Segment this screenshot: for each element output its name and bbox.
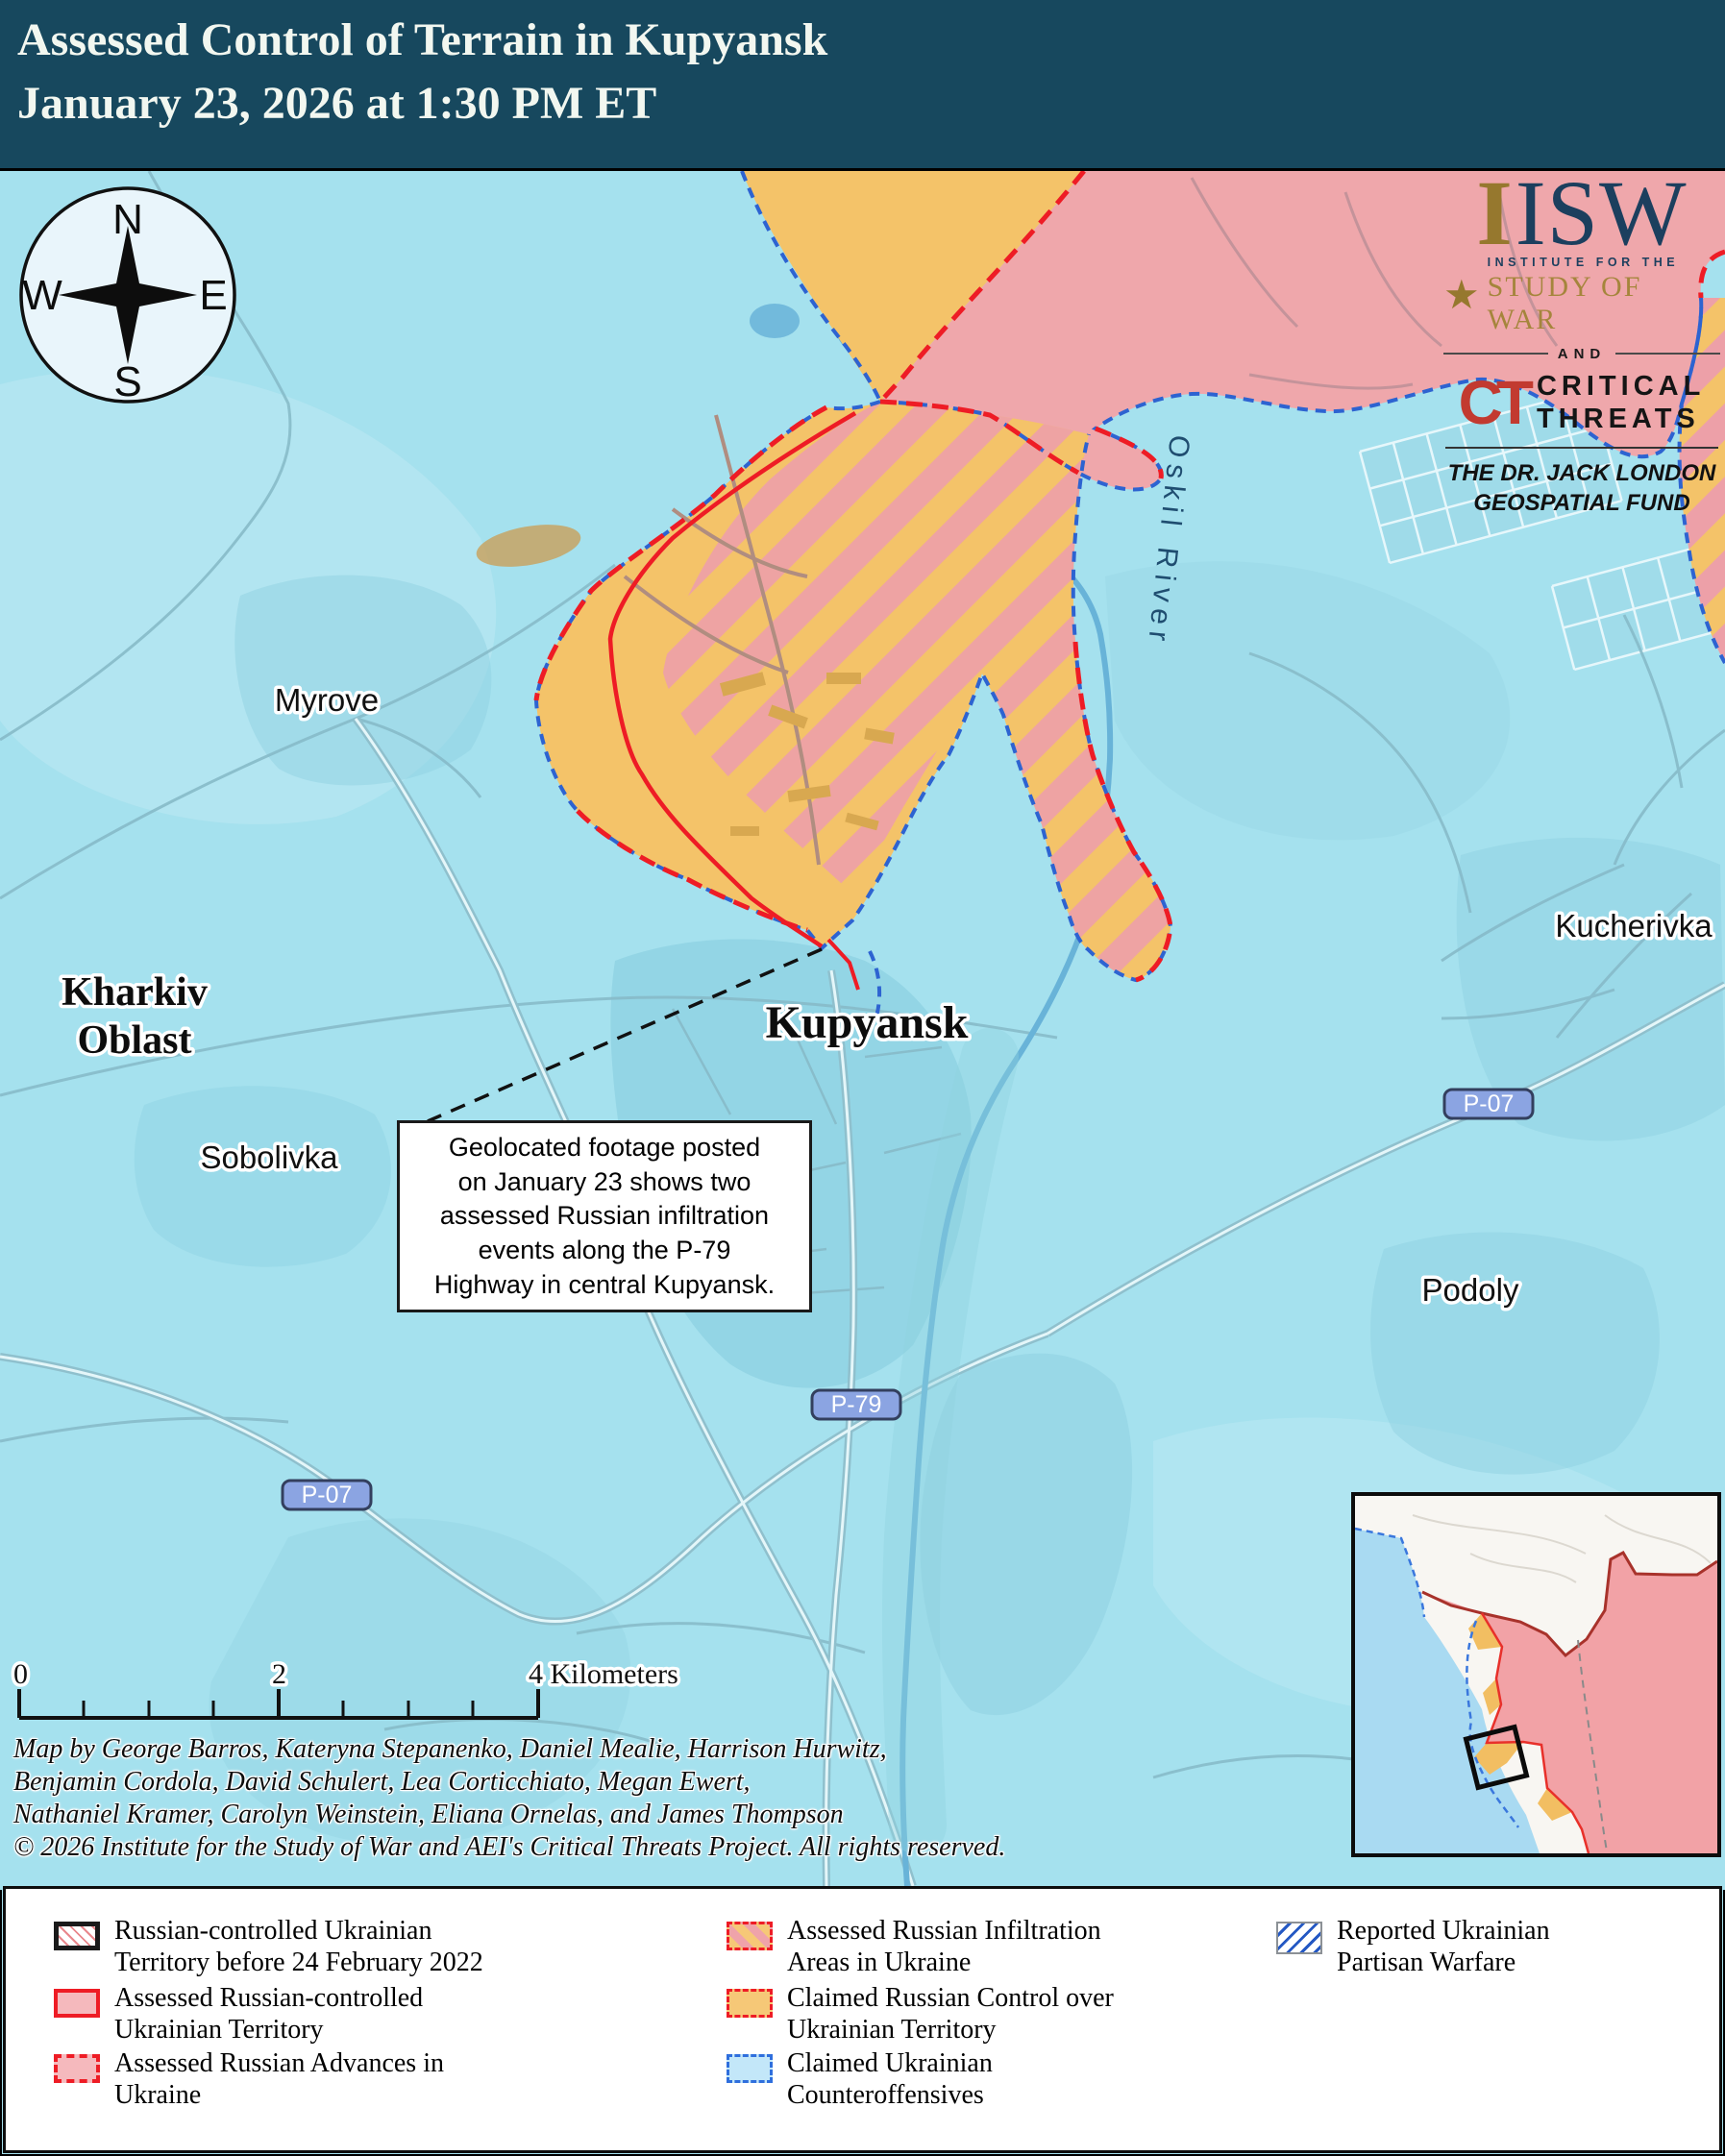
compass-n: N — [112, 196, 143, 243]
legend-label: Reported Ukrainian — [1337, 1916, 1550, 1948]
credits-line-4: © 2026 Institute for the Study of War an… — [13, 1831, 1005, 1864]
compass-s: S — [113, 358, 141, 405]
isw-column-glyph: I — [1476, 176, 1512, 252]
legend-label: Russian-controlled Ukrainian — [114, 1916, 483, 1948]
badge-p07-east: P-07 — [1444, 1090, 1533, 1118]
ct-threats-text: THREATS — [1537, 403, 1705, 435]
legend-swatch-counteroffensives — [727, 2054, 773, 2083]
legend-label: Ukraine — [114, 2080, 444, 2112]
geospatial-fund-text: THE DR. JACK LONDON GEOSPATIAL FUND — [1443, 458, 1720, 518]
scale-2: 2 — [272, 1658, 286, 1690]
legend-label: Territory before 24 February 2022 — [114, 1948, 483, 1979]
legend-swatch-assessed-control — [54, 1989, 100, 2018]
scale-0: 0 — [13, 1658, 28, 1690]
divider-line — [1443, 353, 1548, 355]
legend-label: Claimed Ukrainian — [787, 2048, 993, 2080]
map-credits: Map by George Barros, Kateryna Stepanenk… — [13, 1733, 1005, 1865]
badge-p07-west: P-07 — [283, 1481, 371, 1509]
annotation-line: on January 23 shows two — [404, 1165, 805, 1200]
annotation-line: events along the P-79 — [404, 1234, 805, 1268]
svg-text:P-07: P-07 — [1464, 1090, 1515, 1117]
legend-item-counteroffensives: Claimed UkrainianCounteroffensives — [727, 2048, 993, 2112]
legend-swatch-pre2022 — [54, 1922, 100, 1950]
legend-label: Areas in Ukraine — [787, 1948, 1101, 1979]
isw-study-of-war-text: STUDY OF WAR — [1488, 271, 1720, 336]
legend-item-infiltration: Assessed Russian InfiltrationAreas in Uk… — [727, 1916, 1101, 1979]
legend-label: Ukrainian Territory — [787, 2015, 1114, 2046]
divider-line — [1615, 353, 1720, 355]
annotation-line: Geolocated footage posted — [404, 1131, 805, 1165]
annotation-callout-box: Geolocated footage posted on January 23 … — [397, 1120, 812, 1312]
label-myrove: Myrove — [275, 682, 379, 718]
label-podoly: Podoly — [1422, 1272, 1519, 1308]
label-kucherivka: Kucherivka — [1555, 908, 1713, 943]
legend-item-assessed-control: Assessed Russian-controlledUkrainian Ter… — [54, 1983, 423, 2046]
svg-text:P-79: P-79 — [831, 1391, 882, 1418]
legend-label: Counteroffensives — [787, 2080, 993, 2112]
isw-wordmark: I ISW — [1443, 176, 1720, 252]
legend-item-pre2022: Russian-controlled UkrainianTerritory be… — [54, 1916, 483, 1979]
legend-label: Assessed Russian Advances in — [114, 2048, 444, 2080]
compass-w: W — [22, 272, 62, 319]
legend-swatch-claimed-control — [727, 1989, 773, 2018]
label-kharkiv-oblast-1: Kharkiv — [62, 970, 208, 1015]
inset-canvas — [1355, 1496, 1717, 1853]
annotation-line: Highway in central Kupyansk. — [404, 1268, 805, 1303]
compass-rose: N E S W — [21, 188, 234, 405]
credits-line-3: Nathaniel Kramer, Carolyn Weinstein, Eli… — [13, 1799, 1005, 1831]
legend-swatch-advances — [54, 2054, 100, 2083]
map-title: Assessed Control of Terrain in Kupyansk — [0, 0, 1725, 63]
isw-institute-text: INSTITUTE FOR THE — [1488, 256, 1679, 269]
fund-line-1: THE DR. JACK LONDON — [1443, 458, 1720, 488]
divider-line — [1445, 447, 1718, 449]
svg-text:P-07: P-07 — [302, 1482, 353, 1508]
legend-item-claimed-control: Claimed Russian Control overUkrainian Te… — [727, 1983, 1114, 2046]
and-text: AND — [1558, 346, 1607, 362]
map-subtitle-date: January 23, 2026 at 1:30 PM ET — [0, 63, 1725, 127]
badge-p79: P-79 — [812, 1390, 900, 1419]
credits-line-1: Map by George Barros, Kateryna Stepanenk… — [13, 1733, 1005, 1766]
map-page: N E S W Myrove Kharkiv Oblast Sobolivka … — [0, 0, 1725, 2156]
ct-critical-text: CRITICAL — [1537, 370, 1705, 403]
legend-label: Assessed Russian Infiltration — [787, 1916, 1101, 1948]
annotation-line: assessed Russian infiltration — [404, 1199, 805, 1234]
legend-swatch-infiltration — [727, 1922, 773, 1950]
legend-label: Partisan Warfare — [1337, 1948, 1550, 1979]
scale-4km: 4 Kilometers — [529, 1658, 678, 1690]
credits-line-2: Benjamin Cordola, David Schulert, Lea Co… — [13, 1766, 1005, 1799]
inset-overview-map — [1351, 1492, 1721, 1857]
legend-swatch-partisan — [1276, 1922, 1322, 1954]
fund-line-2: GEOSPATIAL FUND — [1443, 488, 1720, 518]
isw-letters: ISW — [1516, 176, 1688, 252]
isw-ct-logo: I ISW ★ INSTITUTE FOR THE STUDY OF WAR A… — [1443, 176, 1720, 519]
label-sobolivka: Sobolivka — [200, 1139, 338, 1175]
legend-item-partisan: Reported UkrainianPartisan Warfare — [1276, 1916, 1550, 1979]
label-kharkiv-oblast-2: Oblast — [77, 1018, 191, 1063]
map-title-bar: Assessed Control of Terrain in Kupyansk … — [0, 0, 1725, 171]
legend-item-advances: Assessed Russian Advances inUkraine — [54, 2048, 444, 2112]
legend-label: Assessed Russian-controlled — [114, 1983, 423, 2015]
map-legend: Russian-controlled UkrainianTerritory be… — [3, 1886, 1722, 2153]
label-kupyansk: Kupyansk — [766, 997, 969, 1048]
legend-label: Claimed Russian Control over — [787, 1983, 1114, 2015]
isw-star-icon: ★ — [1443, 276, 1480, 316]
ct-logo-mark: CT — [1459, 372, 1527, 433]
legend-label: Ukrainian Territory — [114, 2015, 423, 2046]
compass-e: E — [199, 272, 227, 319]
